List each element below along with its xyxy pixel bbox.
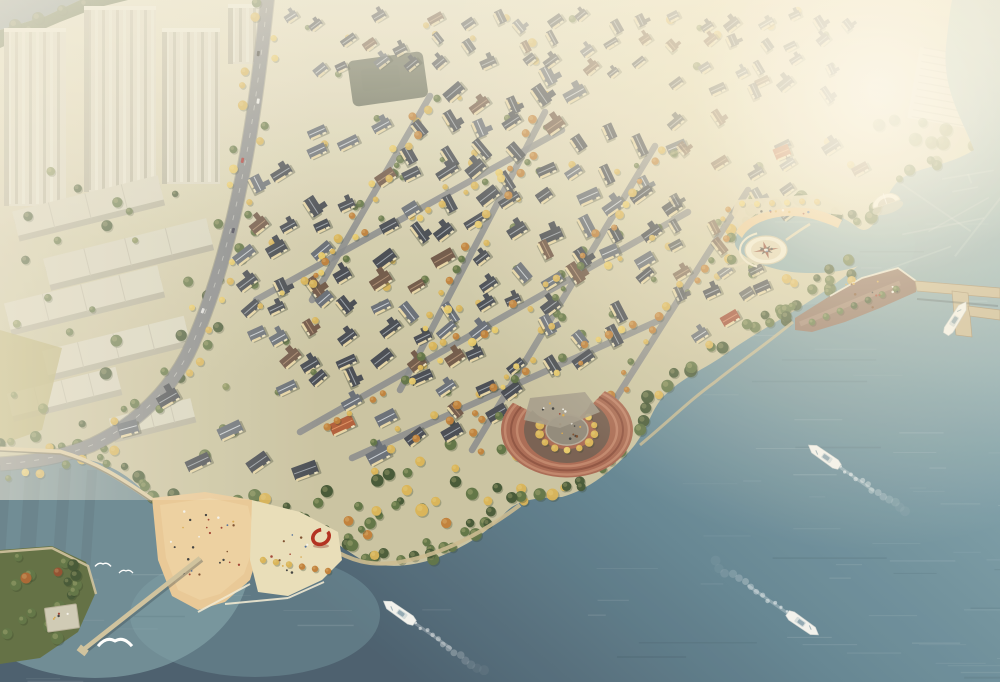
atmosphere-haze bbox=[0, 0, 1000, 682]
aerial-rendering-stage bbox=[0, 0, 1000, 682]
aerial-render-canvas bbox=[0, 0, 1000, 682]
warm-tint bbox=[0, 0, 1000, 682]
